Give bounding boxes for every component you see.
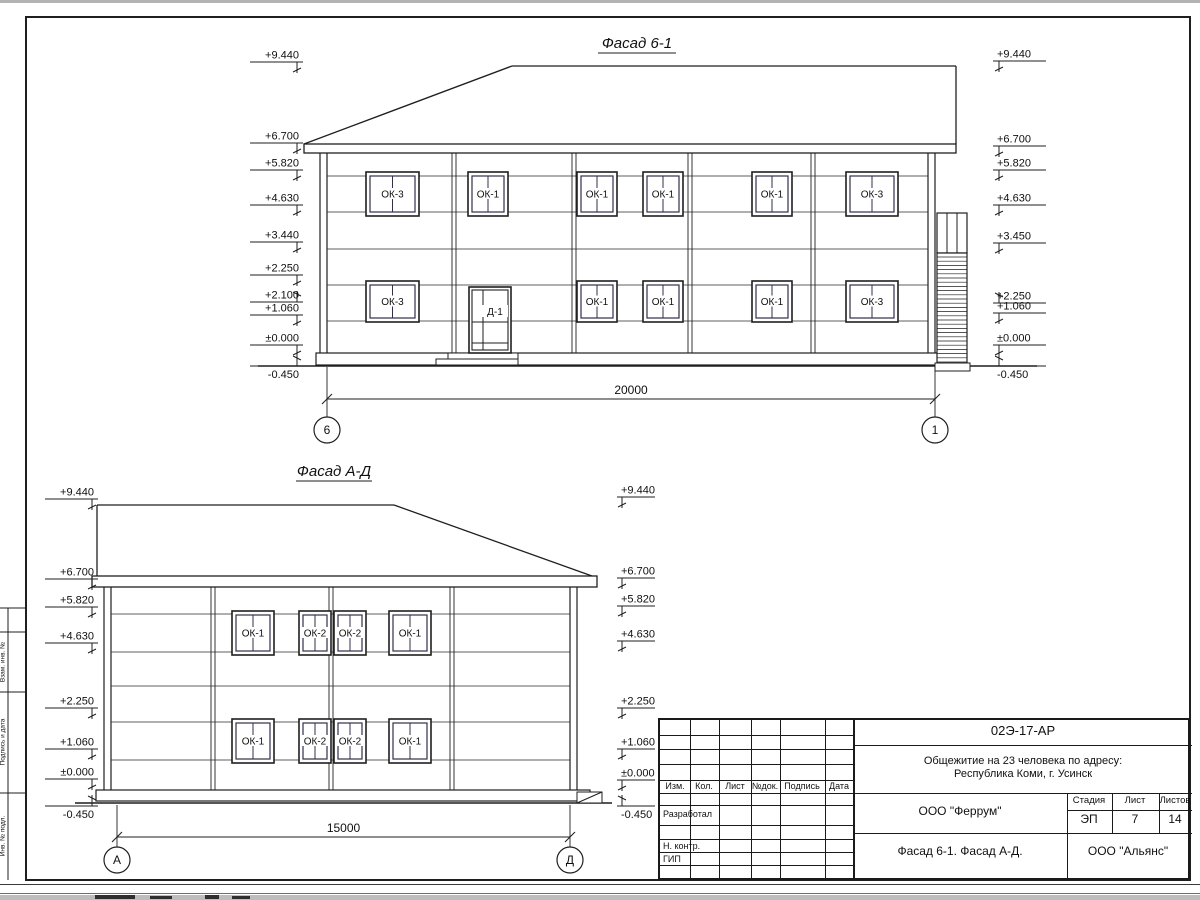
elevation-mark-value: +9.440 bbox=[265, 50, 299, 62]
role-razrabotal: Разработал bbox=[663, 809, 712, 819]
elevation-mark-value: +6.700 bbox=[997, 134, 1031, 146]
tb-line bbox=[690, 720, 691, 878]
col-kol: Кол. bbox=[695, 781, 713, 791]
elevation-mark-value: ±0.000 bbox=[621, 768, 655, 780]
elevation-mark-value: +5.820 bbox=[60, 595, 94, 607]
stage-value: ЭП bbox=[1080, 813, 1097, 827]
stair-base bbox=[935, 363, 970, 371]
elevation-mark-value: +6.700 bbox=[621, 566, 655, 578]
roof-line bbox=[304, 66, 512, 144]
elevation-mark-value: +4.630 bbox=[621, 629, 655, 641]
sheet-value: 7 bbox=[1132, 813, 1139, 827]
window-label: ОК-1 bbox=[477, 190, 500, 201]
scan-edge-line bbox=[0, 893, 1200, 894]
title-block: 02Э-17-АР Общежитие на 23 человека по ад… bbox=[658, 718, 1190, 880]
scan-artifact bbox=[95, 895, 135, 899]
window-label: ОК-3 bbox=[861, 297, 884, 308]
tb-line bbox=[660, 749, 853, 750]
tb-line bbox=[853, 793, 1192, 794]
elevation-mark-value: +5.820 bbox=[265, 158, 299, 170]
tb-line bbox=[780, 720, 781, 878]
elevation-mark-value: +5.820 bbox=[997, 158, 1031, 170]
porch-step bbox=[436, 359, 518, 365]
window-label: ОК-1 bbox=[242, 737, 265, 748]
elevation-mark-value: +1.060 bbox=[265, 303, 299, 315]
tb-line bbox=[660, 852, 853, 853]
role-gip: ГИП bbox=[663, 854, 681, 864]
elevation-mark-value: +3.450 bbox=[997, 231, 1031, 243]
elevation-mark-value: -0.450 bbox=[997, 369, 1028, 381]
scan-edge-top bbox=[0, 0, 1200, 3]
elevation-mark-value: +9.440 bbox=[621, 485, 655, 497]
axis-label: А bbox=[113, 853, 121, 867]
window-label: ОК-2 bbox=[339, 737, 362, 748]
scan-edge-band bbox=[0, 895, 1200, 900]
elevation-mark-value: +2.250 bbox=[60, 696, 94, 708]
elevation-mark-value: -0.450 bbox=[621, 809, 652, 821]
elevation-mark-value: -0.450 bbox=[63, 809, 94, 821]
tb-line bbox=[660, 793, 853, 794]
elevation-mark-value: -0.450 bbox=[268, 369, 299, 381]
tb-line bbox=[751, 720, 752, 878]
stair-railing bbox=[937, 213, 967, 253]
elevation-mark-value: +4.630 bbox=[265, 193, 299, 205]
window-label: ОК-1 bbox=[761, 190, 784, 201]
window-label: ОК-1 bbox=[652, 297, 675, 308]
sheets-label: Листов bbox=[1160, 796, 1191, 807]
tb-line bbox=[825, 720, 826, 878]
window-label: ОК-1 bbox=[652, 190, 675, 201]
tb-line bbox=[660, 865, 853, 866]
sheets-value: 14 bbox=[1168, 813, 1181, 827]
window-label: ОК-1 bbox=[399, 629, 422, 640]
eaves-band bbox=[304, 144, 956, 153]
col-podpis: Подпись bbox=[784, 781, 820, 791]
elevation-mark-value: +9.440 bbox=[60, 487, 94, 499]
window-label: ОК-2 bbox=[304, 629, 327, 640]
scan-artifact bbox=[205, 895, 219, 899]
stage-label: Стадия bbox=[1073, 796, 1105, 807]
dimension-label: 15000 bbox=[327, 821, 361, 835]
scan-artifact bbox=[232, 896, 250, 899]
roof-line bbox=[394, 505, 592, 576]
window-label: ОК-3 bbox=[381, 297, 404, 308]
sheet-label: Лист bbox=[1125, 796, 1146, 807]
role-nkontr: Н. контр. bbox=[663, 841, 700, 851]
door-label: Д-1 bbox=[487, 307, 503, 318]
window-label: ОК-1 bbox=[761, 297, 784, 308]
sheet-title: Фасад 6-1. Фасад А-Д. bbox=[897, 845, 1022, 859]
elevation-mark-value: +2.100 bbox=[265, 290, 299, 302]
designer-org: ООО "Феррум" bbox=[919, 805, 1002, 819]
tb-line bbox=[719, 720, 720, 878]
elevation-mark-value: ±0.000 bbox=[997, 333, 1031, 345]
elevation-mark-value: ±0.000 bbox=[265, 333, 299, 345]
col-data: Дата bbox=[829, 781, 849, 791]
side-stamp-label: Взам. инв. № bbox=[0, 642, 7, 682]
facade-title: Фасад 6-1 bbox=[602, 35, 672, 52]
axis-label: Д bbox=[566, 853, 574, 867]
tb-line bbox=[660, 825, 853, 826]
elevation-mark-value: +2.250 bbox=[621, 696, 655, 708]
elevation-mark-value: +6.700 bbox=[265, 131, 299, 143]
eaves-band bbox=[92, 576, 597, 587]
axis-label: 6 bbox=[324, 423, 331, 437]
tb-line bbox=[853, 745, 1192, 746]
tb-line bbox=[853, 720, 855, 878]
tb-line bbox=[660, 735, 853, 736]
elevation-mark-value: +4.630 bbox=[60, 631, 94, 643]
tb-line bbox=[1112, 793, 1113, 833]
window-label: ОК-1 bbox=[242, 629, 265, 640]
window-label: ОК-2 bbox=[304, 737, 327, 748]
axis-label: 1 bbox=[932, 423, 939, 437]
window-label: ОК-3 bbox=[861, 190, 884, 201]
col-ndok: №док. bbox=[752, 781, 778, 791]
window-label: ОК-3 bbox=[381, 190, 404, 201]
window-label: ОК-1 bbox=[399, 737, 422, 748]
plinth bbox=[96, 790, 590, 801]
elevation-mark-value: +2.250 bbox=[265, 263, 299, 275]
elevation-mark-value: +6.700 bbox=[60, 567, 94, 579]
door-inner bbox=[472, 290, 508, 350]
publisher-org: ООО "Альянс" bbox=[1088, 845, 1168, 859]
tb-line bbox=[853, 833, 1192, 834]
drawing-sheet: Взам. инв. №Подпись и датаИнв. № подл.ОК… bbox=[0, 0, 1200, 900]
elevation-mark-value: +4.630 bbox=[997, 193, 1031, 205]
col-izm: Изм. bbox=[665, 781, 684, 791]
project-name-line1: Общежитие на 23 человека по адресу: bbox=[924, 755, 1122, 768]
dimension-label: 20000 bbox=[614, 383, 648, 397]
tb-line bbox=[660, 839, 853, 840]
scan-artifact bbox=[150, 896, 172, 899]
tb-line bbox=[1067, 793, 1068, 878]
tb-line bbox=[660, 764, 853, 765]
doc-number: 02Э-17-АР bbox=[991, 724, 1055, 739]
plinth bbox=[316, 353, 946, 365]
window-label: ОК-1 bbox=[586, 297, 609, 308]
porch-step bbox=[448, 353, 518, 359]
elevation-mark-value: +1.060 bbox=[60, 737, 94, 749]
elevation-mark-value: ±0.000 bbox=[60, 767, 94, 779]
window-label: ОК-2 bbox=[339, 629, 362, 640]
elevation-mark-value: +3.440 bbox=[265, 230, 299, 242]
elevation-mark-value: +1.060 bbox=[621, 737, 655, 749]
col-list: Лист bbox=[725, 781, 745, 791]
elevation-mark-value: +1.060 bbox=[997, 301, 1031, 313]
scan-edge-line bbox=[0, 884, 1200, 885]
tb-line bbox=[1067, 810, 1192, 811]
elevation-mark-value: +5.820 bbox=[621, 594, 655, 606]
elevation-mark-value: +9.440 bbox=[997, 49, 1031, 61]
side-stamp-label: Подпись и дата bbox=[0, 718, 7, 765]
project-name-line2: Республика Коми, г. Усинск bbox=[954, 768, 1092, 781]
tb-line bbox=[660, 805, 853, 806]
window-label: ОК-1 bbox=[586, 190, 609, 201]
facade-title: Фасад А-Д bbox=[297, 463, 372, 480]
side-stamp-label: Инв. № подл. bbox=[0, 816, 7, 857]
